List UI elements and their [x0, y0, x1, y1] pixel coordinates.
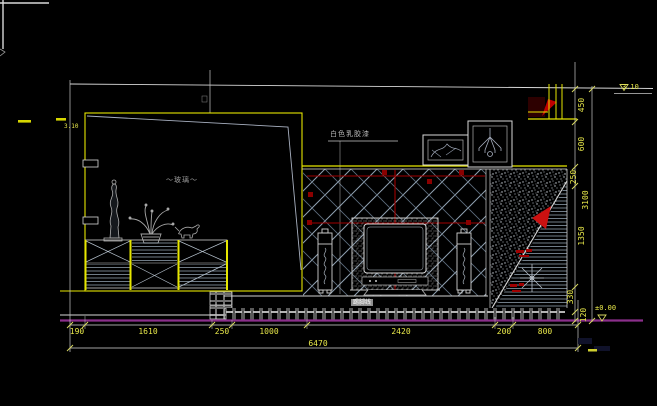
tv-set: [350, 218, 440, 295]
curtain-box: [528, 84, 577, 119]
bay-window-label: ～玻璃～: [166, 177, 198, 184]
floor-tile-band: [224, 308, 565, 320]
dog-figurine: [175, 225, 199, 238]
dim-right-4: 330: [567, 290, 575, 304]
bay-window-glazing: [87, 116, 301, 270]
dim-bottom-4: 2420: [391, 328, 410, 336]
tv-stand: [364, 290, 426, 295]
left-level-dashes: [18, 118, 66, 123]
paint-finish-label: 白色乳胶漆: [330, 131, 370, 138]
level-text-floor: ±0.00: [595, 305, 616, 312]
level-text-top: 3.10: [622, 84, 639, 91]
picture-frame-b: [468, 121, 512, 167]
faint-artifacts: [578, 338, 610, 352]
dim-bottom-0: 190: [70, 328, 84, 336]
dim-right-3: 1350: [578, 226, 586, 245]
dim-right-1: 600: [578, 137, 586, 151]
cad-drawing-canvas[interactable]: 白色乳胶漆 ～玻璃～ 踢脚线 3.10 ±0.00 3.10 190 1610 …: [0, 0, 657, 406]
dim-bottom-6: 800: [538, 328, 552, 336]
dim-right-5: 120: [580, 308, 588, 322]
dim-right-total: 3100: [582, 190, 590, 209]
top-left-corner-mark: [0, 0, 49, 56]
dim-bottom-5: 200: [497, 328, 511, 336]
dim-bottom-total: 6470: [308, 340, 327, 348]
potted-plant: [129, 204, 174, 243]
skirting-label-chip: 踢脚线: [351, 299, 373, 306]
dim-bottom-1: 1610: [138, 328, 157, 336]
tiny-mark: [202, 96, 207, 102]
dim-right-0: 450: [578, 98, 586, 112]
planter-cabinets: [85, 240, 229, 290]
dim-bottom-2: 250: [215, 328, 229, 336]
tv-screen: [364, 224, 426, 273]
linework-layer: [0, 0, 657, 406]
dim-bottom-3: 1000: [259, 328, 278, 336]
dim-right-2: 250: [570, 170, 578, 184]
level-text-left: 3.10: [64, 124, 78, 130]
stone-column: [490, 169, 567, 308]
speaker-left: [318, 229, 332, 293]
ceiling-line: [70, 70, 653, 113]
statue-figure: [104, 180, 122, 241]
tv-control-panel: [362, 277, 428, 285]
picture-frame-a: [423, 135, 468, 165]
speaker-right: [457, 229, 471, 293]
